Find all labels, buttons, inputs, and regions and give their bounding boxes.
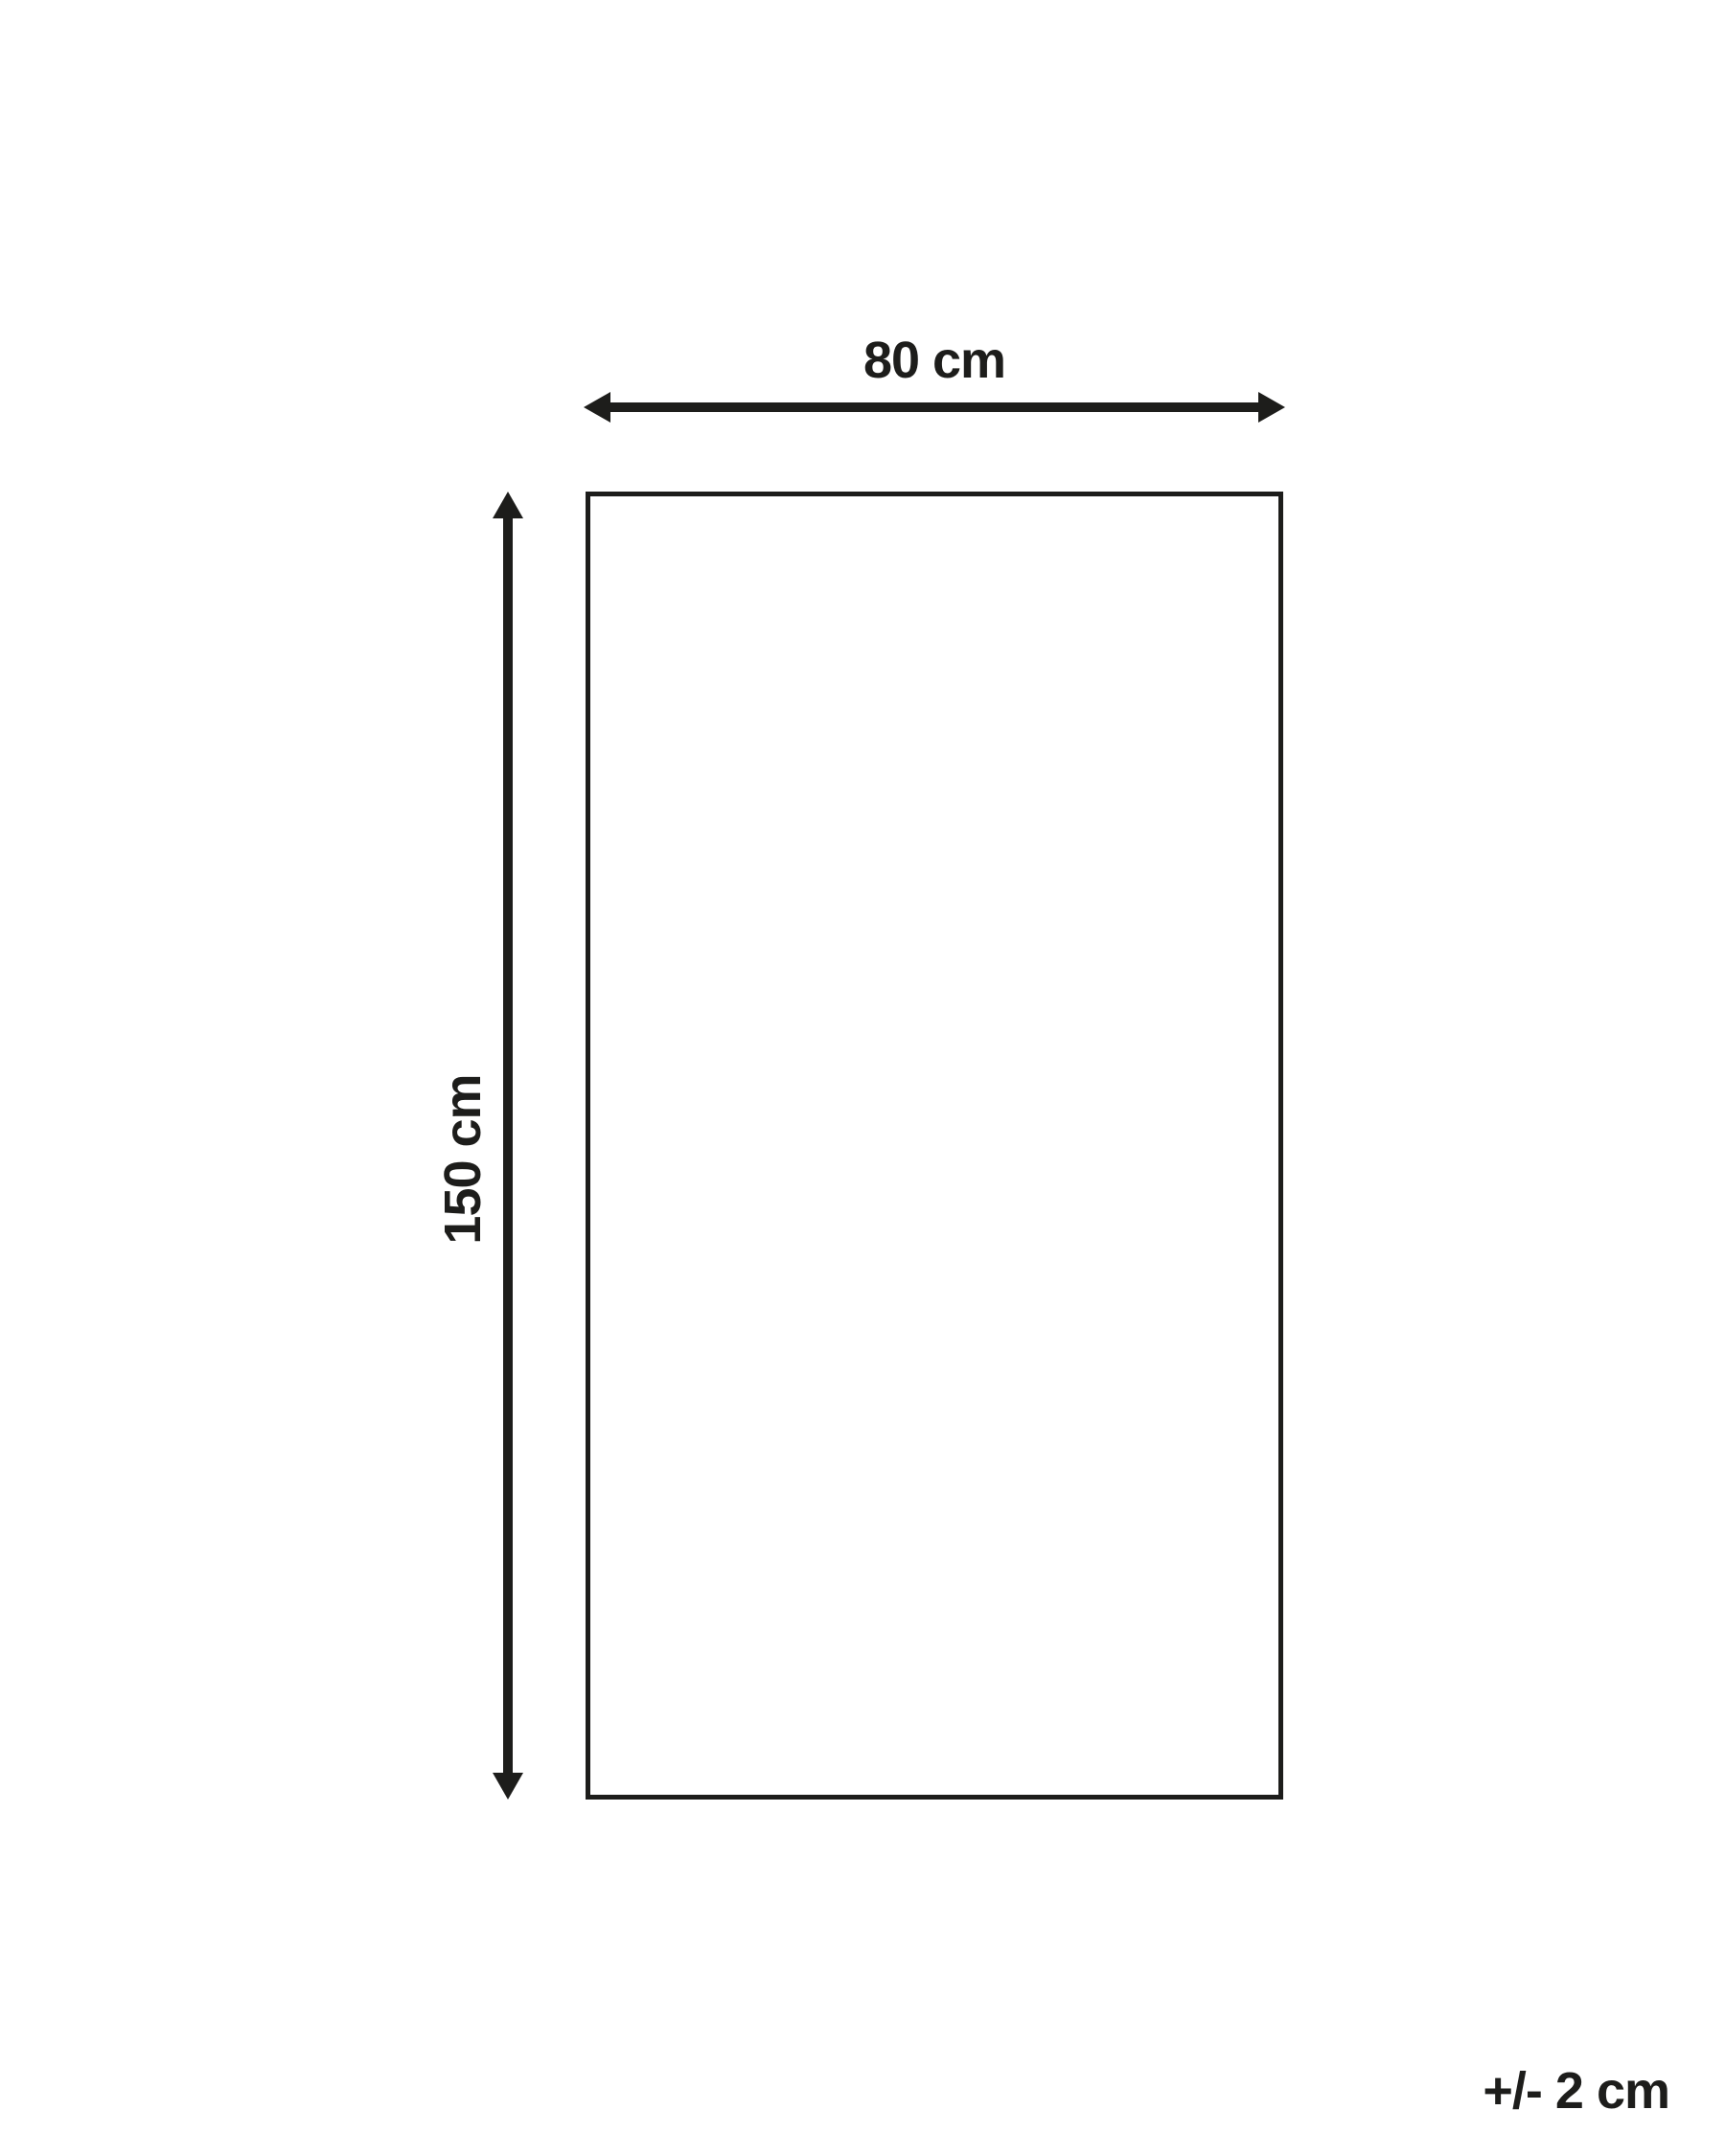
- product-outline: [586, 492, 1283, 1800]
- arrowhead-right-icon: [1258, 392, 1285, 423]
- height-dimension-arrow: [492, 492, 524, 1800]
- width-dimension-label: 80 cm: [584, 330, 1285, 391]
- width-arrow-line: [607, 402, 1262, 412]
- dimension-diagram-canvas: 80 cm 150 cm +/- 2 cm: [0, 0, 1725, 2156]
- tolerance-label: +/- 2 cm: [1483, 2060, 1669, 2122]
- arrowhead-down-icon: [493, 1773, 523, 1800]
- width-dimension-arrow: [584, 391, 1285, 424]
- height-dimension-label: 150 cm: [432, 1006, 494, 1313]
- height-arrow-line: [503, 515, 513, 1777]
